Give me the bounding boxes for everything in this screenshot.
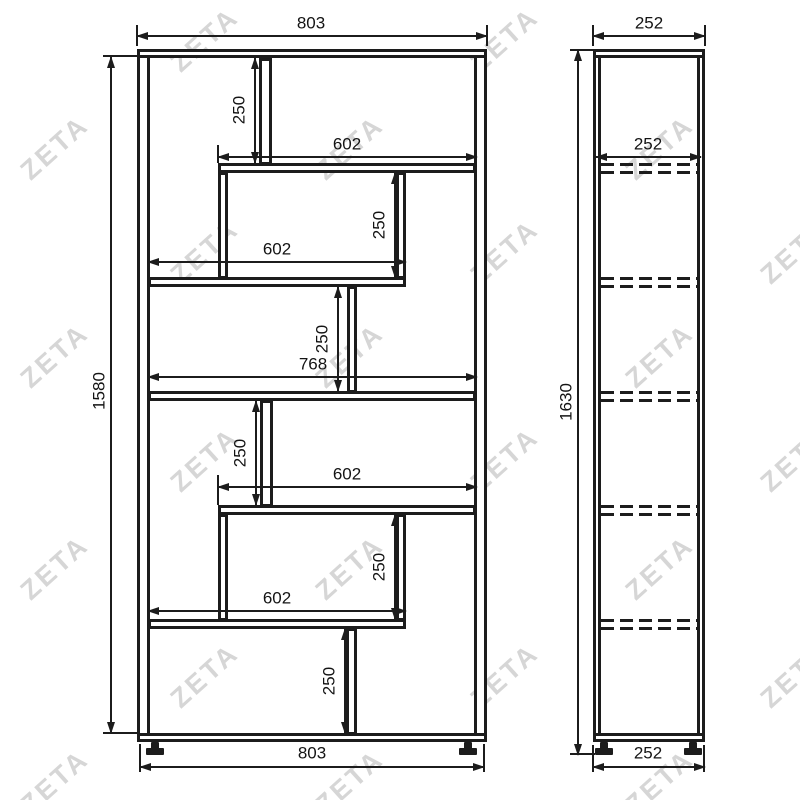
front-divider-cell4 <box>260 400 273 507</box>
front-shelf-1 <box>218 163 476 173</box>
dim-line-cell1-height <box>254 58 256 163</box>
watermark-text: ZETA <box>755 422 800 499</box>
dim-line-cell5-height <box>394 515 396 619</box>
side-bottom-panel <box>593 733 705 742</box>
side-top-panel <box>593 49 705 58</box>
dim-label-cell6-height: 250 <box>321 667 338 695</box>
watermark-text: ZETA <box>15 530 96 607</box>
watermark-text: ZETA <box>165 638 246 715</box>
dim-line-cell6-height <box>344 629 346 733</box>
front-top-panel <box>137 49 487 58</box>
front-divider-cell5-left <box>218 514 228 621</box>
dim-label-front-width-bottom: 803 <box>298 745 326 762</box>
side-hidden-shelf4-top <box>601 505 697 508</box>
dim-label-shelf5-width: 602 <box>263 590 291 607</box>
front-bottom-panel <box>137 733 487 742</box>
dim-label-shelf4-width: 602 <box>333 466 361 483</box>
dim-line-side-depth-top <box>593 35 705 37</box>
dim-line-front-width-bottom <box>140 766 484 768</box>
side-hidden-shelf3-bottom <box>601 399 697 402</box>
dim-line-side-height <box>577 50 579 755</box>
dim-label-cell4-height: 250 <box>232 439 249 467</box>
dim-line-front-height <box>110 57 112 733</box>
side-hidden-shelf2-top <box>601 277 697 280</box>
dim-label-shelf2-width: 602 <box>263 241 291 258</box>
dim-label-side-height: 1630 <box>558 383 575 421</box>
front-middle-shelf <box>148 391 476 401</box>
front-left-foot-base <box>146 748 164 755</box>
watermark-text: ZETA <box>15 744 96 800</box>
dim-label-shelf1-width: 602 <box>333 136 361 153</box>
front-shelf-2 <box>148 277 406 287</box>
dim-label-cell3-height: 250 <box>314 325 331 353</box>
side-hidden-shelf5-bottom <box>601 627 697 630</box>
dim-label-cell1-height: 250 <box>231 96 248 124</box>
side-right-foot-base <box>684 748 702 755</box>
dim-label-front-width-top: 803 <box>297 15 325 32</box>
dim-line-front-width-top <box>137 35 487 37</box>
dim-line-side-depth-bottom <box>593 766 705 768</box>
watermark-text: ZETA <box>15 110 96 187</box>
watermark-text: ZETA <box>755 638 800 715</box>
side-hidden-shelf2-bottom <box>601 285 697 288</box>
front-divider-cell2-left <box>218 172 228 279</box>
side-left-foot-base <box>595 748 613 755</box>
dim-label-cell5-height: 250 <box>371 553 388 581</box>
dim-label-front-height: 1580 <box>91 372 108 410</box>
front-divider-bottom <box>346 628 357 735</box>
side-hidden-shelf4-bottom <box>601 513 697 516</box>
dim-line-cell4-height <box>255 401 257 505</box>
watermark-text: ZETA <box>165 2 246 79</box>
dim-label-side-depth-top: 252 <box>635 15 663 32</box>
dim-line-inner-width <box>148 376 477 378</box>
front-divider-cell5-right <box>396 514 406 621</box>
front-shelf-5 <box>148 619 406 629</box>
dim-label-side-shelf-depth: 252 <box>634 136 662 153</box>
technical-drawing-shelving-unit: ZETAZETAZETAZETAZETAZETAZETAZETAZETAZETA… <box>0 0 800 800</box>
side-hidden-shelf1-bottom <box>601 171 697 174</box>
watermark-text: ZETA <box>755 214 800 291</box>
watermark-text: ZETA <box>620 530 701 607</box>
dim-line-shelf5-width <box>148 610 406 612</box>
dim-label-cell2-height: 250 <box>371 211 388 239</box>
watermark-text: ZETA <box>620 318 701 395</box>
dim-label-inner-width: 768 <box>299 356 327 373</box>
dim-line-shelf2-width <box>148 261 406 263</box>
front-right-foot-base <box>459 748 477 755</box>
dim-line-shelf4-width <box>218 486 477 488</box>
side-hidden-shelf3-top <box>601 391 697 394</box>
dim-line-side-shelf-depth <box>596 156 701 158</box>
front-divider-top <box>259 58 272 165</box>
dim-label-side-depth-bottom: 252 <box>634 745 662 762</box>
watermark-text: ZETA <box>15 318 96 395</box>
side-hidden-shelf5-top <box>601 619 697 622</box>
front-shelf-4 <box>218 505 476 515</box>
side-hidden-shelf1-top <box>601 163 697 166</box>
